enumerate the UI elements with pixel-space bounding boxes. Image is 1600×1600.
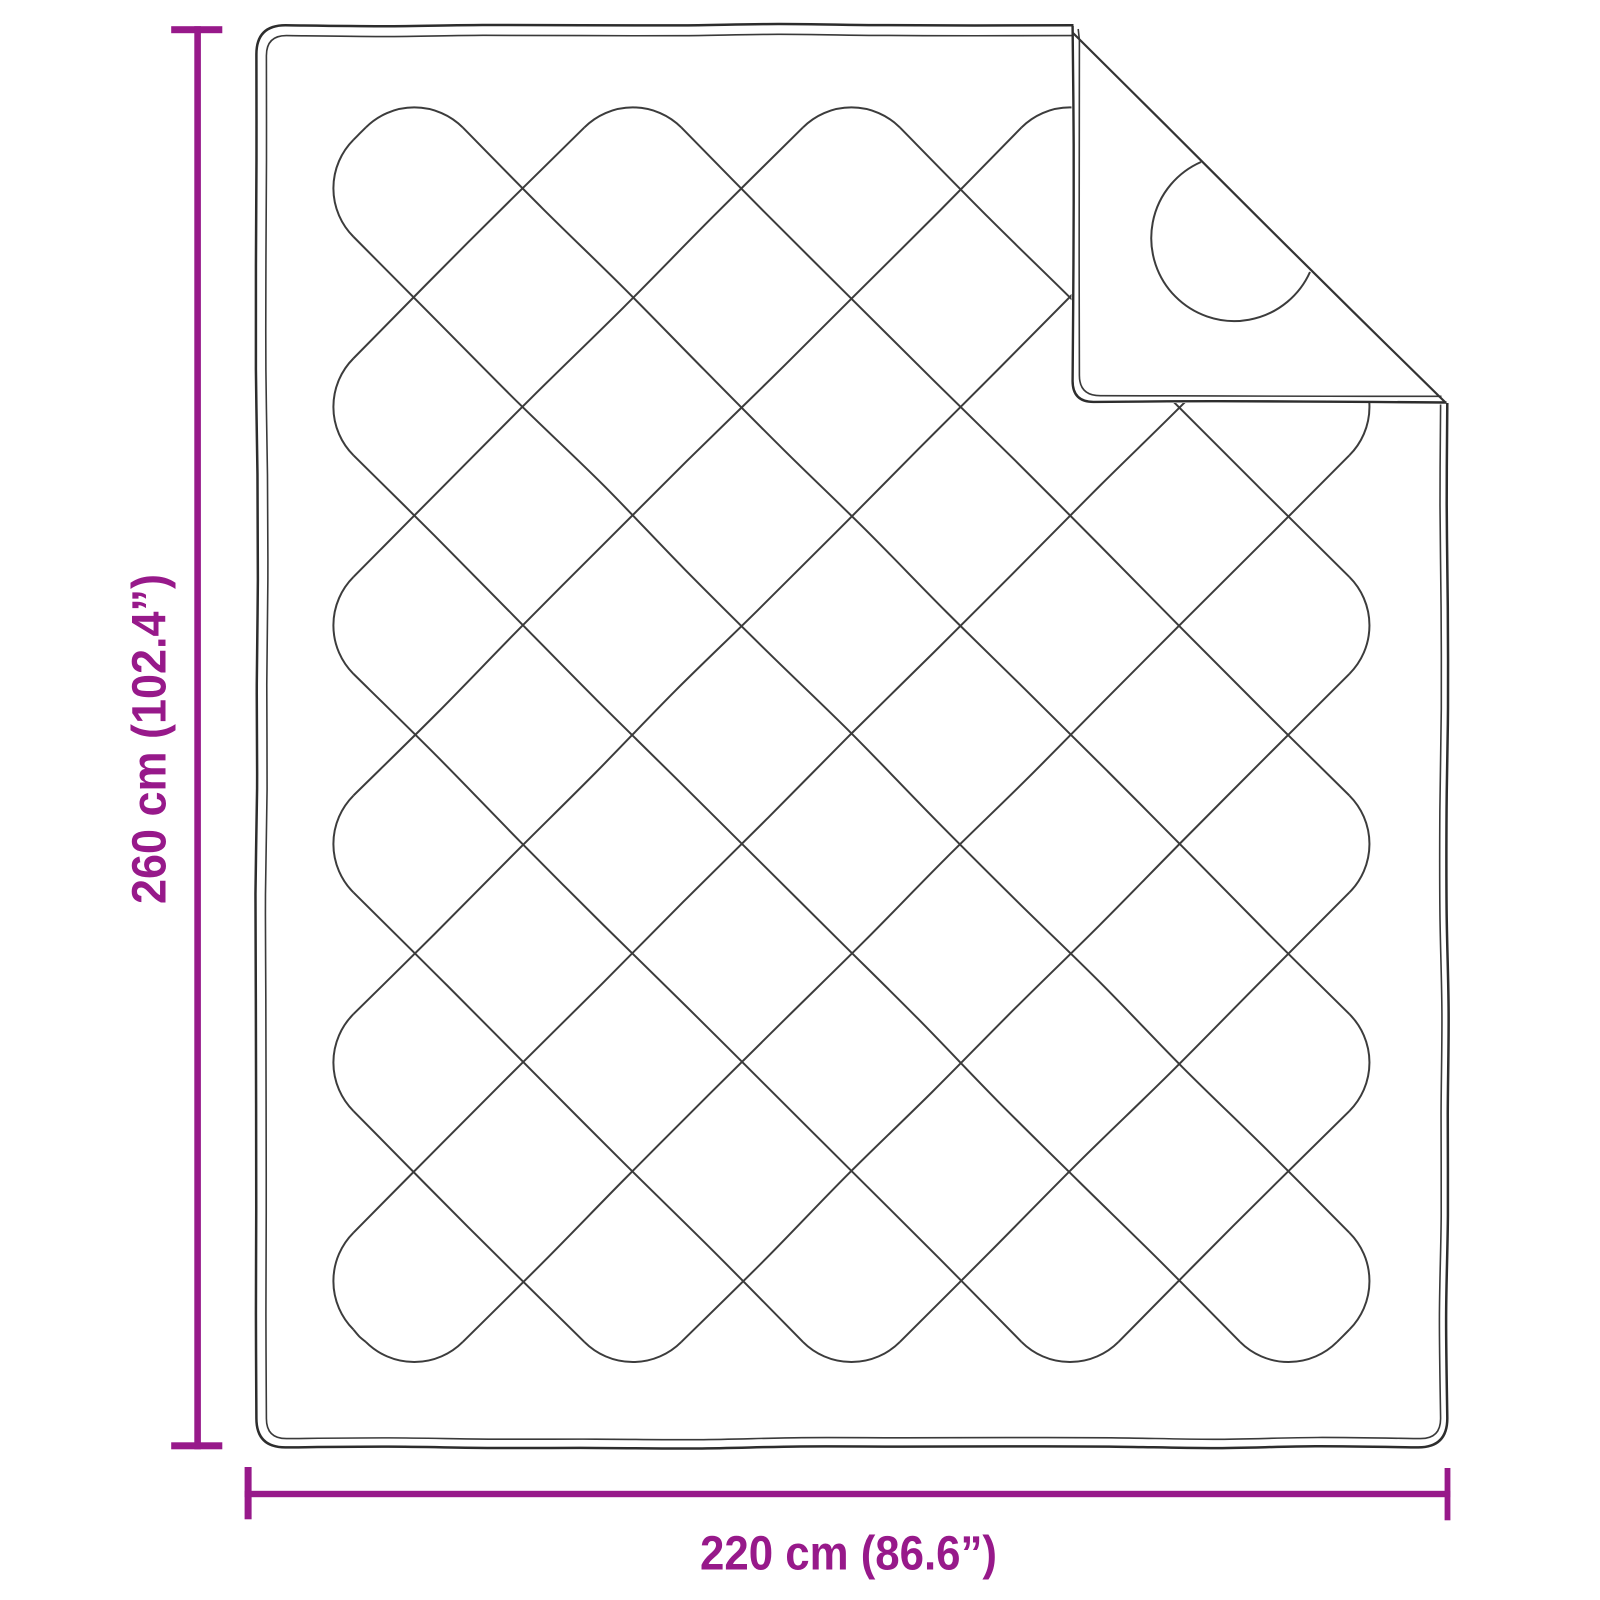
svg-text:220 cm (86.6”): 220 cm (86.6”) bbox=[700, 1528, 997, 1581]
svg-text:260 cm (102.4”): 260 cm (102.4”) bbox=[124, 574, 177, 904]
